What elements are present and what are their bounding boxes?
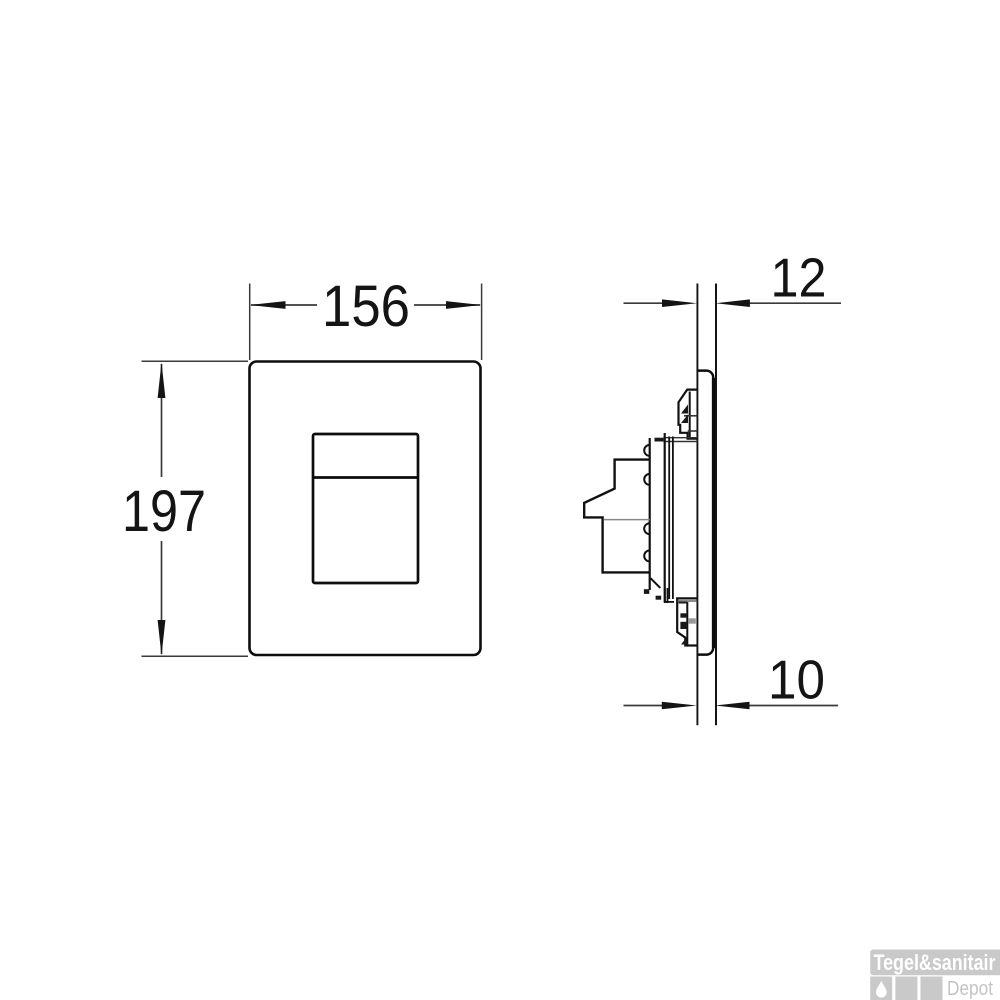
svg-text:10: 10 xyxy=(768,649,825,711)
svg-text:12: 12 xyxy=(771,247,827,309)
svg-text:Depot: Depot xyxy=(947,977,993,1000)
svg-text:156: 156 xyxy=(322,274,410,339)
svg-text:197: 197 xyxy=(122,479,206,544)
svg-text:Tegel&sanitair: Tegel&sanitair xyxy=(874,950,996,975)
